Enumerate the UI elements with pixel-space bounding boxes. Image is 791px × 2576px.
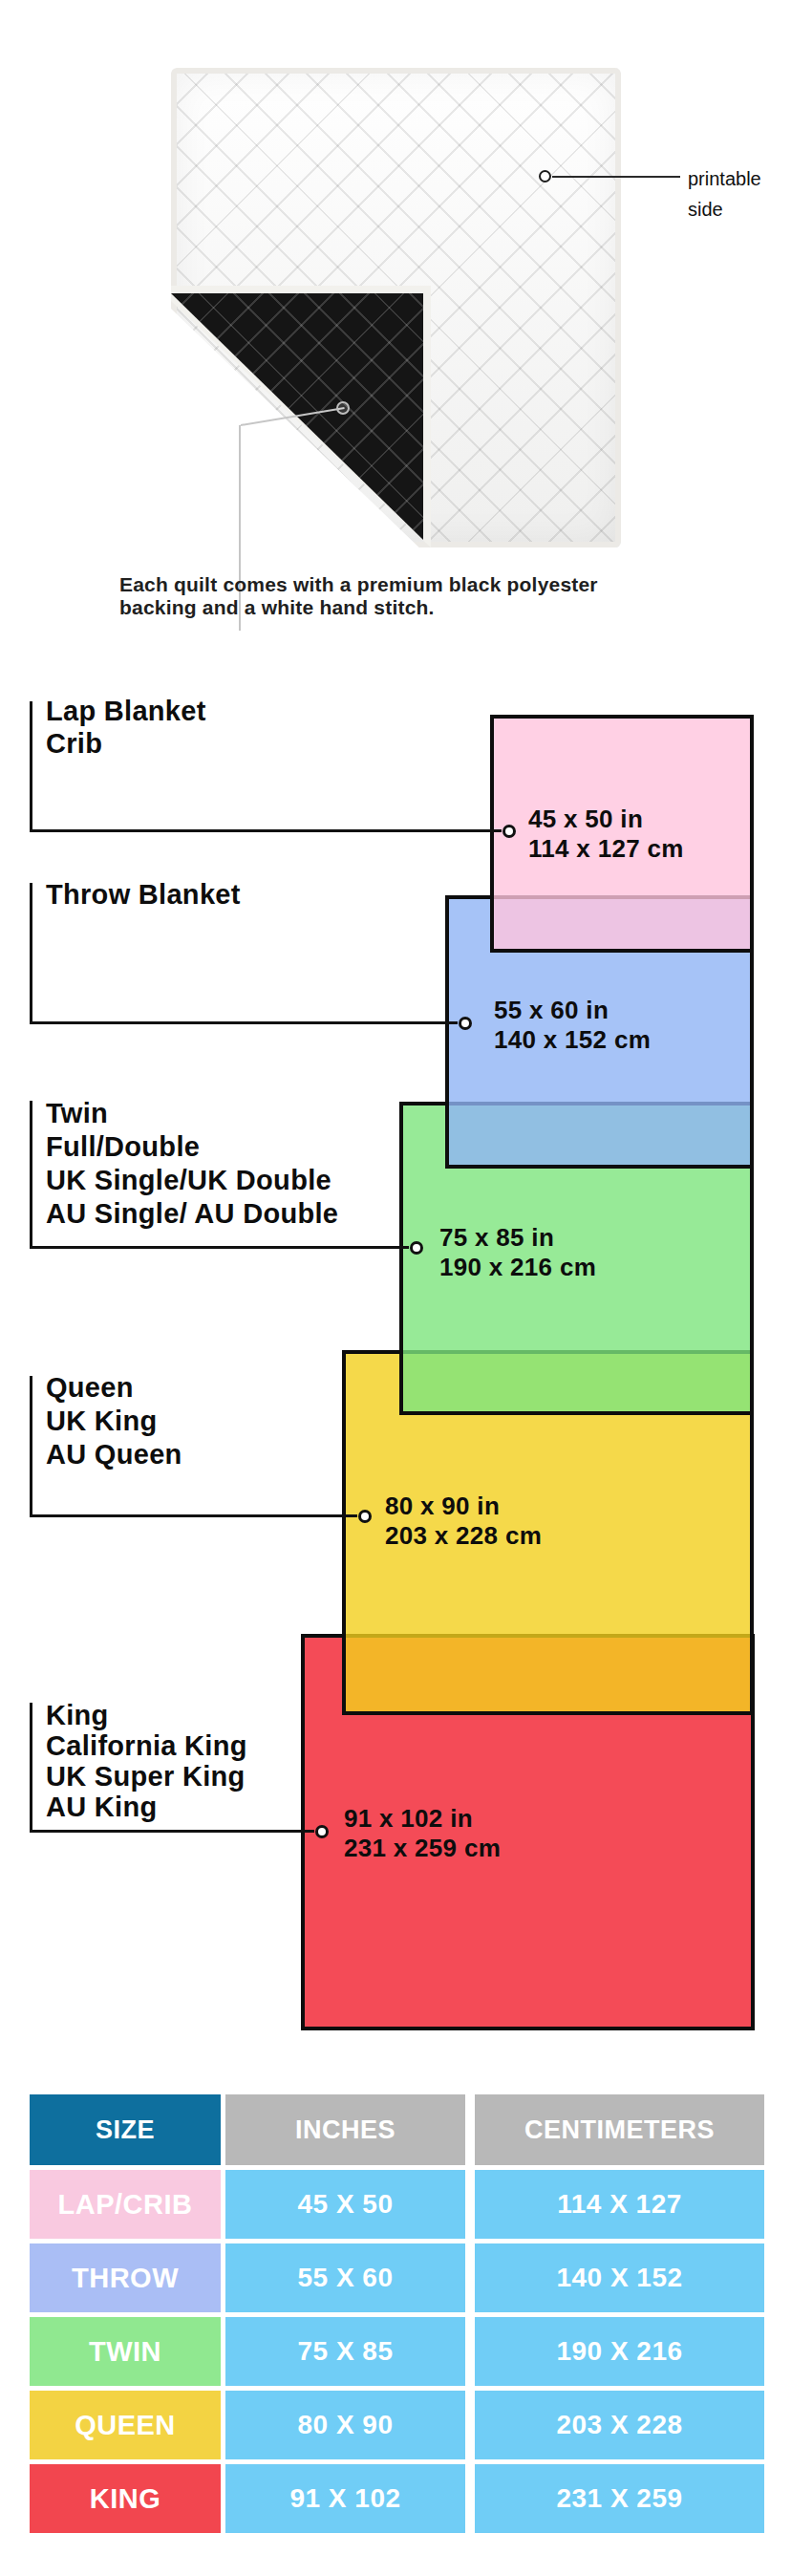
group-title-line: UK King bbox=[46, 1405, 182, 1438]
table-header-centimeters: CENTIMETERS bbox=[475, 2094, 764, 2165]
table-cell-size: TWIN bbox=[30, 2317, 221, 2386]
dim-label-twin: 75 x 85 in 190 x 216 cm bbox=[439, 1223, 596, 1282]
table-row: TWIN 75 X 85 190 X 216 bbox=[30, 2317, 764, 2386]
printable-side-label-line2: side bbox=[688, 194, 761, 225]
table-cell-cm: 203 X 228 bbox=[475, 2391, 764, 2459]
leader-line-twin bbox=[30, 1246, 409, 1249]
leader-line-king bbox=[30, 1830, 314, 1833]
group-title-lap-crib: Lap Blanket Crib bbox=[46, 695, 206, 760]
printable-side-marker-icon bbox=[539, 170, 551, 182]
table-cell-inches: 91 X 102 bbox=[225, 2464, 465, 2533]
hero-caption-line2: backing and a white hand stitch. bbox=[119, 596, 731, 619]
table-cell-size: KING bbox=[30, 2464, 221, 2533]
table-cell-size: THROW bbox=[30, 2243, 221, 2312]
bracket-line-twin bbox=[30, 1101, 32, 1249]
group-title-twin: Twin Full/Double UK Single/UK Double AU … bbox=[46, 1097, 338, 1231]
printable-side-label: printable side bbox=[688, 163, 761, 225]
table-row: QUEEN 80 X 90 203 X 228 bbox=[30, 2391, 764, 2459]
leader-line-queen bbox=[30, 1514, 357, 1517]
group-title-line: California King bbox=[46, 1730, 247, 1761]
dim-inches: 55 x 60 in bbox=[494, 996, 651, 1025]
table-header-inches: INCHES bbox=[225, 2094, 465, 2165]
dim-label-king: 91 x 102 in 231 x 259 cm bbox=[344, 1804, 501, 1863]
dim-inches: 45 x 50 in bbox=[528, 805, 684, 834]
dim-cm: 114 x 127 cm bbox=[528, 834, 684, 864]
dim-cm: 231 x 259 cm bbox=[344, 1834, 501, 1863]
table-cell-size: QUEEN bbox=[30, 2391, 221, 2459]
table-row: LAP/CRIB 45 X 50 114 X 127 bbox=[30, 2170, 764, 2239]
table-cell-cm: 140 X 152 bbox=[475, 2243, 764, 2312]
group-title-throw: Throw Blanket bbox=[46, 878, 241, 911]
group-title-line: King bbox=[46, 1700, 247, 1730]
marker-circle-icon bbox=[410, 1241, 423, 1255]
printable-side-leader-line bbox=[552, 176, 680, 178]
dim-cm: 190 x 216 cm bbox=[439, 1253, 596, 1282]
marker-circle-icon bbox=[315, 1825, 329, 1838]
bracket-line-throw bbox=[30, 883, 32, 1024]
table-cell-inches: 80 X 90 bbox=[225, 2391, 465, 2459]
marker-circle-icon bbox=[358, 1510, 372, 1523]
group-title-line: Throw Blanket bbox=[46, 878, 241, 911]
stitch-marker-icon bbox=[336, 401, 350, 415]
group-title-line: AU Single/ AU Double bbox=[46, 1197, 338, 1231]
dim-cm: 203 x 228 cm bbox=[385, 1521, 542, 1551]
table-row: KING 91 X 102 231 X 259 bbox=[30, 2464, 764, 2533]
hero-caption: Each quilt comes with a premium black po… bbox=[119, 573, 731, 618]
quilt-size-infographic: printable side Each quilt comes with a p… bbox=[0, 0, 791, 2576]
printable-side-label-line1: printable bbox=[688, 163, 761, 194]
dim-inches: 91 x 102 in bbox=[344, 1804, 501, 1834]
table-cell-size: LAP/CRIB bbox=[30, 2170, 221, 2239]
group-title-line: Crib bbox=[46, 727, 206, 760]
group-title-line: Twin bbox=[46, 1097, 338, 1130]
table-header-row: SIZE INCHES CENTIMETERS bbox=[30, 2094, 764, 2165]
dim-inches: 75 x 85 in bbox=[439, 1223, 596, 1253]
table-cell-inches: 45 X 50 bbox=[225, 2170, 465, 2239]
marker-circle-icon bbox=[502, 825, 516, 838]
hero-caption-line1: Each quilt comes with a premium black po… bbox=[119, 573, 731, 596]
marker-circle-icon bbox=[459, 1017, 472, 1030]
bracket-line-lap bbox=[30, 701, 32, 832]
table-cell-inches: 55 X 60 bbox=[225, 2243, 465, 2312]
dim-cm: 140 x 152 cm bbox=[494, 1025, 651, 1055]
group-title-line: UK Single/UK Double bbox=[46, 1164, 338, 1197]
group-title-line: UK Super King bbox=[46, 1761, 247, 1792]
leader-line-lap bbox=[30, 829, 502, 832]
group-title-line: Queen bbox=[46, 1371, 182, 1405]
table-row: THROW 55 X 60 140 X 152 bbox=[30, 2243, 764, 2312]
group-title-line: Lap Blanket bbox=[46, 695, 206, 727]
dim-label-lap: 45 x 50 in 114 x 127 cm bbox=[528, 805, 684, 864]
dim-label-throw: 55 x 60 in 140 x 152 cm bbox=[494, 996, 651, 1055]
leader-line-throw bbox=[30, 1021, 458, 1024]
group-title-queen: Queen UK King AU Queen bbox=[46, 1371, 182, 1471]
table-cell-inches: 75 X 85 bbox=[225, 2317, 465, 2386]
group-title-line: AU King bbox=[46, 1792, 247, 1822]
dim-label-queen: 80 x 90 in 203 x 228 cm bbox=[385, 1492, 542, 1551]
bracket-line-queen bbox=[30, 1376, 32, 1517]
table-cell-cm: 190 X 216 bbox=[475, 2317, 764, 2386]
table-cell-cm: 114 X 127 bbox=[475, 2170, 764, 2239]
group-title-line: AU Queen bbox=[46, 1438, 182, 1471]
dim-inches: 80 x 90 in bbox=[385, 1492, 542, 1521]
table-cell-cm: 231 X 259 bbox=[475, 2464, 764, 2533]
group-title-king: King California King UK Super King AU Ki… bbox=[46, 1700, 247, 1822]
table-header-size: SIZE bbox=[30, 2094, 221, 2165]
bracket-line-king bbox=[30, 1703, 32, 1833]
group-title-line: Full/Double bbox=[46, 1130, 338, 1164]
